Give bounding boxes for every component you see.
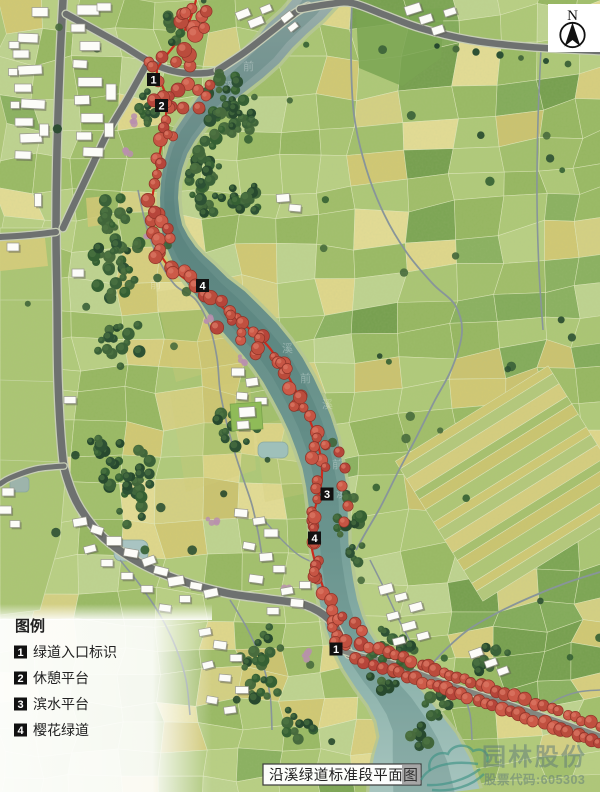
svg-text:股票代码:605303: 股票代码:605303: [484, 772, 585, 787]
svg-text:滨水平台: 滨水平台: [33, 696, 89, 712]
svg-text:1: 1: [17, 647, 23, 659]
svg-text:休憩平台: 休憩平台: [33, 670, 89, 686]
svg-text:溪: 溪: [282, 342, 293, 355]
svg-text:4: 4: [17, 725, 24, 737]
svg-text:2: 2: [17, 673, 23, 685]
svg-text:前: 前: [300, 371, 311, 385]
svg-text:2: 2: [158, 101, 164, 113]
svg-text:图: 图: [403, 767, 418, 784]
svg-text:园林股份: 园林股份: [482, 744, 587, 771]
svg-text:图例: 图例: [15, 617, 45, 635]
svg-text:4: 4: [199, 281, 206, 293]
svg-text:N: N: [567, 8, 578, 24]
svg-text:樱花绿道: 樱花绿道: [33, 722, 89, 738]
svg-text:溪: 溪: [322, 398, 333, 411]
svg-text:绿道入口标识: 绿道入口标识: [33, 644, 117, 660]
svg-text:前: 前: [243, 59, 254, 73]
svg-text:4: 4: [311, 533, 318, 545]
svg-text:沿溪绿道标准段平面: 沿溪绿道标准段平面: [269, 767, 403, 784]
svg-text:1: 1: [333, 644, 339, 656]
svg-text:3: 3: [324, 489, 330, 501]
svg-text:3: 3: [17, 699, 23, 711]
svg-text:1: 1: [150, 75, 156, 87]
